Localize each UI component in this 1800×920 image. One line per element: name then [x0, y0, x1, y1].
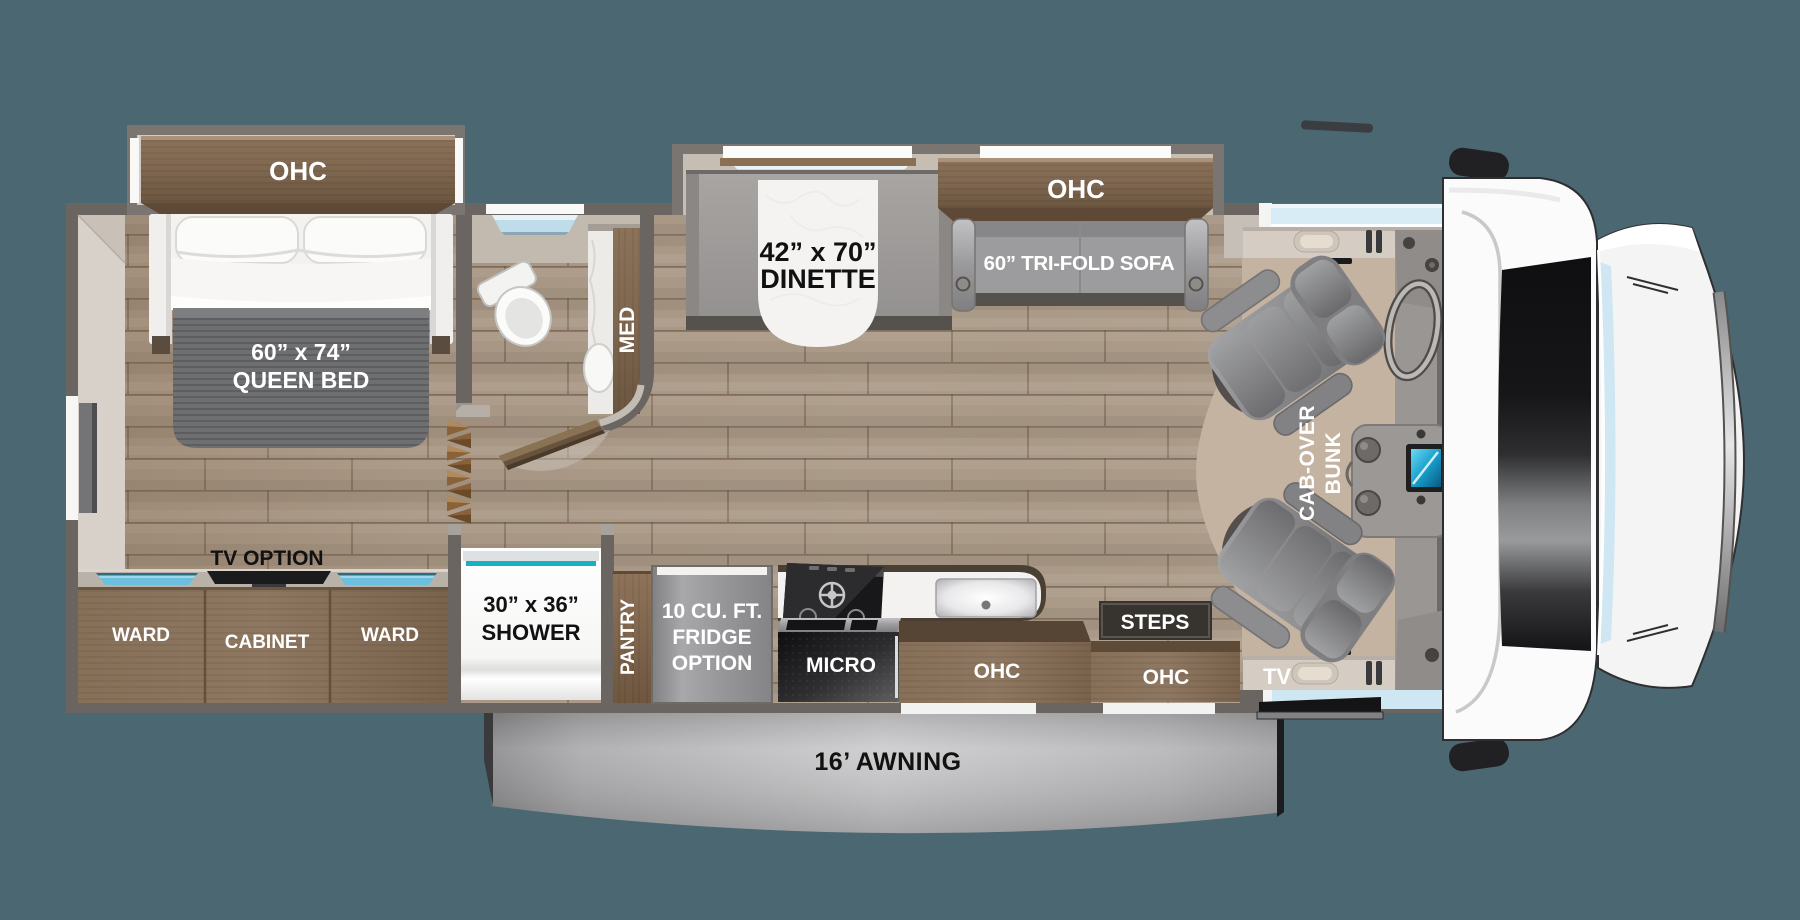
svg-text:60” x 74”: 60” x 74” — [251, 339, 351, 365]
svg-text:WARD: WARD — [112, 625, 170, 646]
svg-text:PANTRY: PANTRY — [618, 599, 639, 675]
svg-text:MED: MED — [616, 307, 639, 354]
svg-text:10 CU. FT.: 10 CU. FT. — [662, 600, 762, 623]
svg-text:CABINET: CABINET — [225, 632, 310, 653]
svg-text:OPTION: OPTION — [672, 652, 753, 675]
svg-text:42” x 70”: 42” x 70” — [759, 237, 876, 267]
svg-text:OHC: OHC — [974, 660, 1021, 683]
svg-text:DINETTE: DINETTE — [760, 264, 876, 294]
svg-text:60” TRI-FOLD SOFA: 60” TRI-FOLD SOFA — [984, 252, 1175, 275]
svg-text:OHC: OHC — [269, 156, 327, 186]
svg-text:16’ AWNING: 16’ AWNING — [814, 748, 961, 776]
svg-text:CAB-OVER: CAB-OVER — [1296, 405, 1319, 521]
svg-text:WARD: WARD — [361, 625, 419, 646]
svg-text:OHC: OHC — [1047, 174, 1105, 204]
svg-text:MICRO: MICRO — [806, 654, 876, 677]
svg-text:TV OPTION: TV OPTION — [210, 547, 323, 570]
svg-text:BUNK: BUNK — [1322, 432, 1345, 495]
svg-text:TV: TV — [1263, 664, 1291, 689]
svg-text:FRIDGE: FRIDGE — [672, 626, 751, 649]
svg-text:30” x 36”: 30” x 36” — [483, 592, 578, 617]
svg-text:STEPS: STEPS — [1121, 611, 1190, 634]
svg-text:OHC: OHC — [1143, 666, 1190, 689]
svg-text:SHOWER: SHOWER — [482, 620, 581, 645]
svg-text:QUEEN BED: QUEEN BED — [233, 367, 370, 393]
